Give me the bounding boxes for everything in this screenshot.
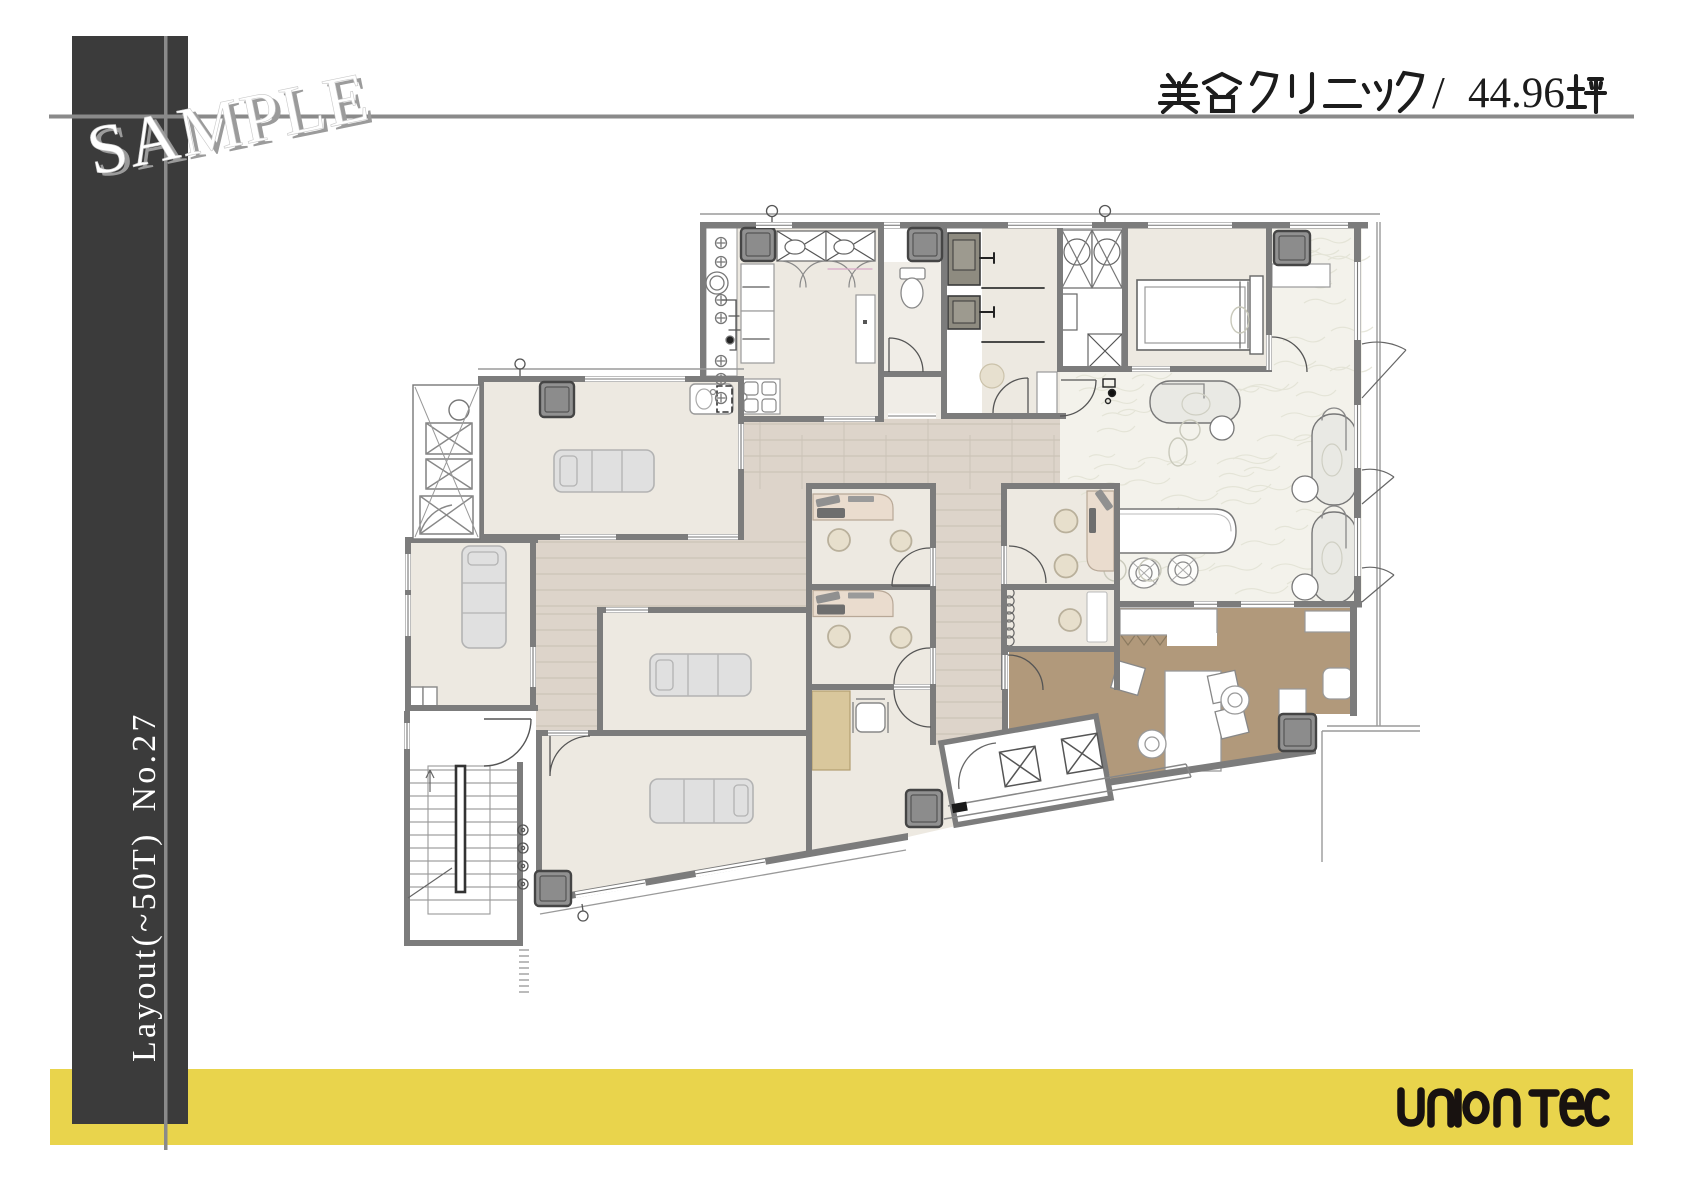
svg-text:Layout(~50T) No.27: Layout(~50T) No.27	[126, 711, 163, 1062]
svg-text:44.96: 44.96	[1468, 70, 1565, 117]
svg-text:/: /	[1432, 67, 1445, 118]
